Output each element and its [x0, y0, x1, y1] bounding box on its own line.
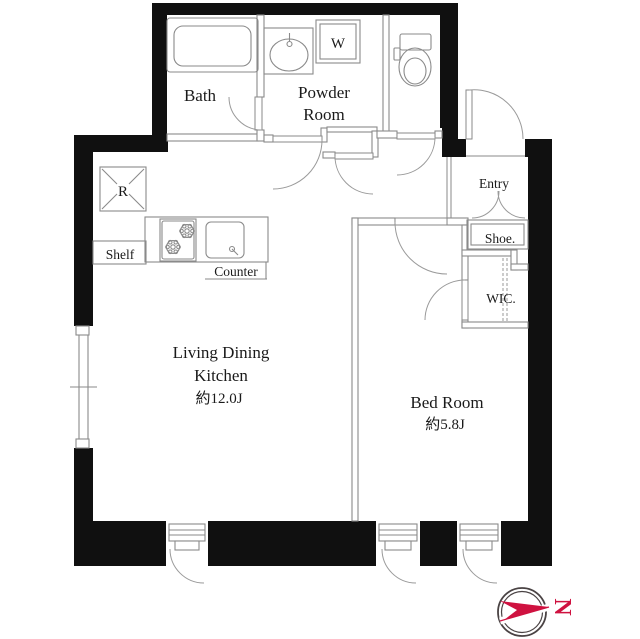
floor-plan: Bath Powder Room W R Shelf Counter Entry…: [0, 0, 640, 639]
floor-plan-drawing: Bath Powder Room W R Shelf Counter Entry…: [0, 0, 640, 639]
counter-label: Counter: [214, 264, 258, 279]
ldk-label-2: Kitchen: [194, 366, 248, 385]
front-door-opening: [466, 139, 525, 157]
shoe-label: Shoe.: [485, 231, 515, 246]
ldk-label-1: Living Dining: [173, 343, 270, 362]
wic-label: WIC.: [486, 291, 516, 306]
step-wall: [74, 135, 168, 152]
compass-north-letter: N: [549, 598, 575, 616]
bedroom-area-label: 約5.8J: [425, 416, 465, 433]
ldk-area-label: 約12.0J: [195, 390, 242, 407]
refrigerator-label: R: [118, 184, 128, 200]
shelf-label: Shelf: [106, 247, 135, 262]
washer-label: W: [331, 36, 346, 52]
bedroom-label: Bed Room: [410, 393, 483, 412]
floor-entry-strip: [442, 157, 528, 521]
floor-ldk: [93, 141, 442, 521]
bath-label: Bath: [184, 86, 217, 105]
entry-label: Entry: [479, 176, 509, 191]
powder-room-label-2: Room: [303, 105, 345, 124]
north-compass-icon: N: [498, 588, 575, 636]
powder-room-label-1: Powder: [298, 83, 350, 102]
